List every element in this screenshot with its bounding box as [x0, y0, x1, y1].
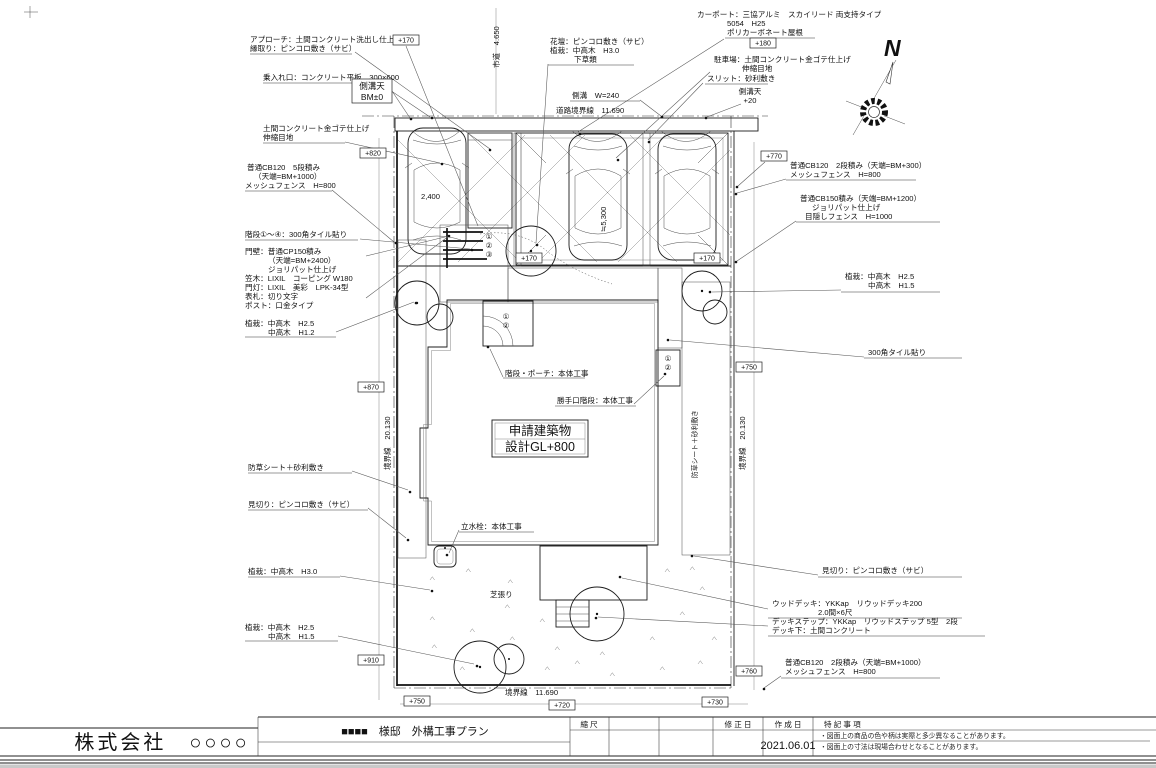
level-170b: +170 — [521, 256, 537, 263]
label-flowerbed-1: 花壇：ピンコロ敷き（サビ） — [550, 36, 649, 46]
deck-step — [556, 600, 589, 627]
label-cb2r-a: 普通CB120 2段積み（天端=BM+300） — [790, 160, 926, 170]
label-tile300: 300角タイル貼り — [868, 347, 926, 357]
gravel-strip-right — [682, 282, 730, 555]
label-plant-l2: 植栽：中高木 H3.0 — [248, 566, 317, 576]
level-770: +770 — [766, 154, 782, 161]
label-edge-cut-2: 見切り：ピンコロ敷き（サビ） — [822, 565, 928, 575]
label-cb5-1: 普通CB120 5段積み — [247, 162, 320, 172]
label-carport-3: ポリカーボネート屋根 — [727, 27, 803, 37]
title-block: 株式会社 ○○○○ ■■■■ 様邸 外構工事プラン 縮 尺 修 正 日 作 成 … — [0, 717, 1156, 768]
level-870: +870 — [363, 385, 379, 392]
label-parking-1: 駐車場：土間コンクリート金ゴテ仕上げ — [714, 54, 851, 64]
label-gate-4: 笠木：LIXIL コーピング W180 — [245, 273, 353, 283]
drawing-sheet: 申請建築物 設計GL+800 — [0, 0, 1156, 768]
bm-value: BM±0 — [361, 92, 383, 102]
notes-label: 特 記 事 項 — [824, 719, 861, 729]
label-cb150-c: 目隠しフェンス H=1000 — [805, 211, 892, 221]
kitchen-step-number-2: ② — [665, 363, 672, 372]
sheet-corner-mark — [24, 6, 38, 18]
label-gutter-top: 側溝天 — [739, 86, 762, 96]
car-2 — [566, 134, 630, 260]
porch-step-number-1: ① — [503, 312, 510, 321]
compass-arrowhead — [886, 62, 893, 84]
site-plan-drawing: 申請建築物 設計GL+800 — [0, 0, 1156, 768]
label-gutter-top-val: +20 — [744, 96, 757, 105]
revision-date-label: 修 正 日 — [724, 719, 751, 729]
label-slab-2: 伸縮目地 — [263, 132, 294, 142]
label-cb2r-b: メッシュフェンス H=800 — [790, 170, 881, 179]
kitchen-step-number-1: ① — [665, 354, 672, 363]
step-number-2: ② — [486, 241, 493, 250]
note-1: ・図面上の商品の色や柄は実際と多少異なることがあります。 — [820, 731, 1010, 740]
label-slab-1: 土間コンクリート金ゴテ仕上げ — [263, 123, 370, 133]
label-road-width: 市道 4.650 — [491, 26, 501, 68]
north-label: N — [884, 35, 901, 61]
level-170c: +170 — [699, 256, 715, 263]
label-cb150-b: ジョリパット仕上げ — [812, 202, 881, 212]
label-cb150-a: 普通CB150積み（天端=BM+1200） — [800, 193, 921, 203]
label-weed-sheet: 防草シート＋砂利敷き — [248, 462, 324, 472]
label-approach-1: アプローチ：土間コンクリート洗出し仕上げ — [250, 34, 402, 44]
label-edge-cut: 見切り：ピンコロ敷き（サビ） — [248, 499, 354, 509]
label-flowerbed-3: 下草類 — [574, 54, 597, 64]
label-plant-l3a: 植栽：中高木 H2.5 — [245, 622, 314, 632]
label-gutter: 側溝 W=240 — [572, 90, 619, 100]
car-3 — [655, 134, 719, 260]
label-approach-2: 縁取り：ピンコロ敷き（サビ） — [250, 43, 356, 53]
step-number-1: ① — [486, 232, 493, 241]
label-gate-6: 表札：切り文字 — [245, 291, 299, 301]
label-stairs: 階段①～④：300角タイル貼り — [245, 229, 347, 239]
label-lawn: 芝張り — [490, 589, 513, 599]
label-plant-r1a: 植栽：中高木 H2.5 — [845, 271, 914, 281]
wood-deck — [540, 546, 647, 627]
label-flowerbed-2: 植栽：中高木 H3.0 — [550, 45, 619, 55]
label-gate-7: ポスト：口金タイプ — [245, 300, 314, 310]
label-deck-4: デッキ下：土間コンクリート — [772, 625, 871, 635]
note-2: ・図面上の寸法は現場合わせとなることがあります。 — [820, 742, 982, 751]
label-kitchen-note: 勝手口階段：本体工事 — [557, 395, 633, 405]
gravel-strip-left — [398, 240, 426, 558]
north-compass: N — [846, 35, 905, 135]
lawn-grass-marks — [430, 567, 717, 676]
level-180: +180 — [755, 41, 771, 48]
label-plant-r1b: 中高木 H1.5 — [868, 280, 914, 290]
step-number-3: ③ — [486, 250, 493, 259]
label-cb2b-b: メッシュフェンス H=800 — [785, 667, 876, 676]
label-plant-l1a: 植栽：中高木 H2.5 — [245, 318, 314, 328]
label-plant-l1b: 中高木 H1.2 — [268, 327, 314, 337]
level-820: +820 — [365, 151, 381, 158]
label-deck-2: 2.0間×6尺 — [818, 608, 853, 617]
label-cb5-2: （天端=BM+1000） — [254, 171, 322, 181]
drawing-title: ■■■■ 様邸 外構工事プラン — [341, 724, 489, 738]
pinkoro-edging — [480, 233, 612, 284]
level-760: +760 — [741, 669, 757, 676]
created-date-label: 作 成 日 — [774, 719, 801, 729]
slit-gravel-1 — [514, 133, 521, 266]
label-gate-5: 門灯：LIXIL 美彩 LPK-34型 — [245, 282, 349, 292]
dim-boundary-bottom: 境界線 11.690 — [505, 687, 558, 697]
label-plant-l3b: 中高木 H1.5 — [268, 631, 314, 641]
level-750r: +750 — [741, 365, 757, 372]
label-carport-1: カーポート：三協アルミ スカイリード 両支持タイプ — [697, 9, 882, 19]
label-carport-2: 5054 H25 — [727, 19, 765, 28]
dim-boundary-left: 境界線 20.130 — [382, 416, 392, 470]
label-gate-3: ジョリパット仕上げ — [268, 264, 337, 274]
label-gate-1: 門壁：普通CP150積み — [245, 246, 322, 256]
approach-strip — [468, 133, 512, 228]
level-730: +730 — [707, 700, 723, 707]
company-name: 株式会社 ○○○○ — [74, 731, 249, 754]
label-cb2b-a: 普通CB120 2段積み（天端=BM+1000） — [785, 657, 926, 667]
building-label-line2: 設計GL+800 — [505, 439, 575, 454]
level-170a: +170 — [398, 38, 414, 45]
dim-car-width: 2,400 — [421, 192, 440, 201]
label-deck-1: ウッドデッキ：YKKap リウッドデッキ200 — [772, 598, 922, 608]
trees — [395, 226, 727, 693]
bm-label: 側溝天 — [359, 81, 385, 91]
label-weed-sheet-vertical: 防草シート＋砂利敷き — [690, 410, 699, 478]
label-road-boundary: 道路境界線 11.690 — [556, 105, 624, 115]
porch-step-number-2: ② — [503, 321, 510, 330]
label-porch-note: 階段・ポーチ：本体工事 — [505, 368, 589, 378]
label-gate-2: （天端=BM+2400） — [268, 255, 336, 265]
label-faucet-note: 立水栓：本体工事 — [461, 521, 522, 531]
building-outline: 申請建築物 設計GL+800 — [420, 300, 680, 567]
label-deck-3: デッキステップ：YKKap リウッドステップ 5型 2段 — [772, 616, 958, 626]
building-label-box: 申請建築物 設計GL+800 — [492, 420, 588, 457]
sheet-edge-shadow — [0, 765, 1156, 768]
label-slit: スリット：砂利敷き — [707, 73, 775, 83]
car-1 — [405, 128, 469, 254]
slit-gravel-2 — [643, 133, 650, 266]
created-date-value: 2021.06.01 — [760, 740, 815, 752]
level-910: +910 — [363, 658, 379, 665]
level-750b: +750 — [409, 699, 425, 706]
scale-label: 縮 尺 — [580, 719, 598, 729]
water-faucet — [434, 546, 456, 567]
dim-boundary-right: 境界線 20.130 — [737, 416, 747, 470]
dim-parking-depth: ≒5,300 — [599, 207, 608, 232]
level-720: +720 — [554, 703, 570, 710]
building-label-line1: 申請建築物 — [509, 423, 572, 438]
label-parking-2: 伸縮目地 — [742, 63, 773, 73]
leader-lines — [332, 39, 864, 690]
label-cb5-3: メッシュフェンス H=800 — [245, 181, 336, 190]
